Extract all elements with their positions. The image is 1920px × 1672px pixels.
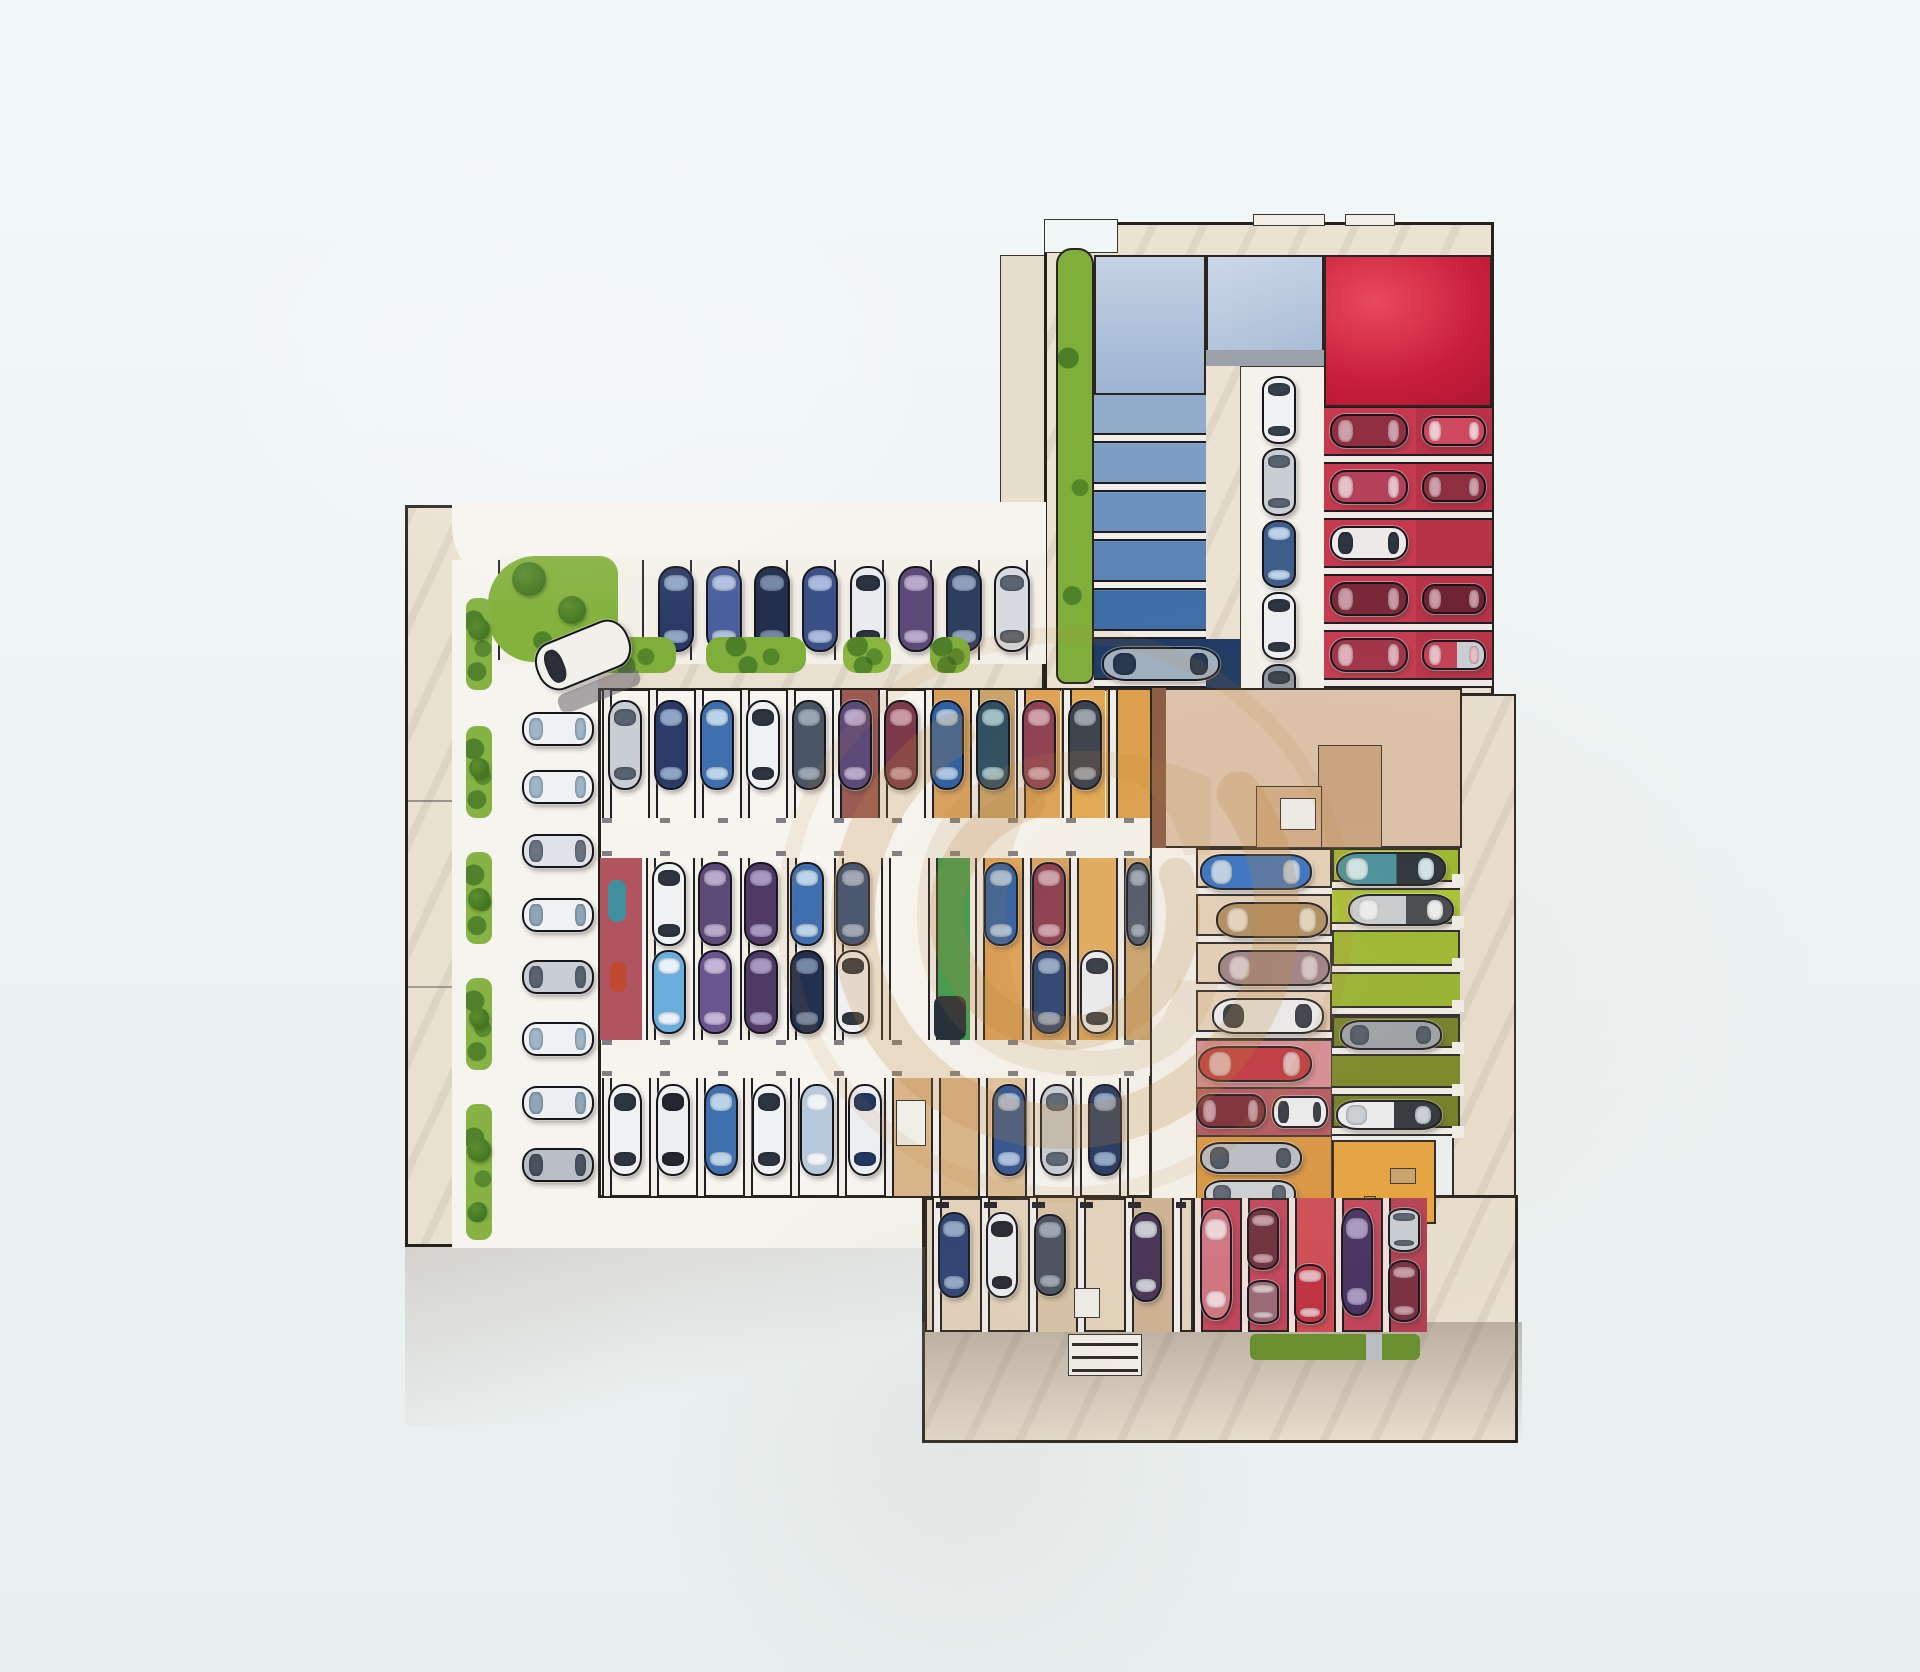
overlay-layer <box>0 0 1920 1672</box>
watercolor-wash <box>0 0 1920 1672</box>
parking-floorplan-illustration: C <box>0 0 1920 1672</box>
